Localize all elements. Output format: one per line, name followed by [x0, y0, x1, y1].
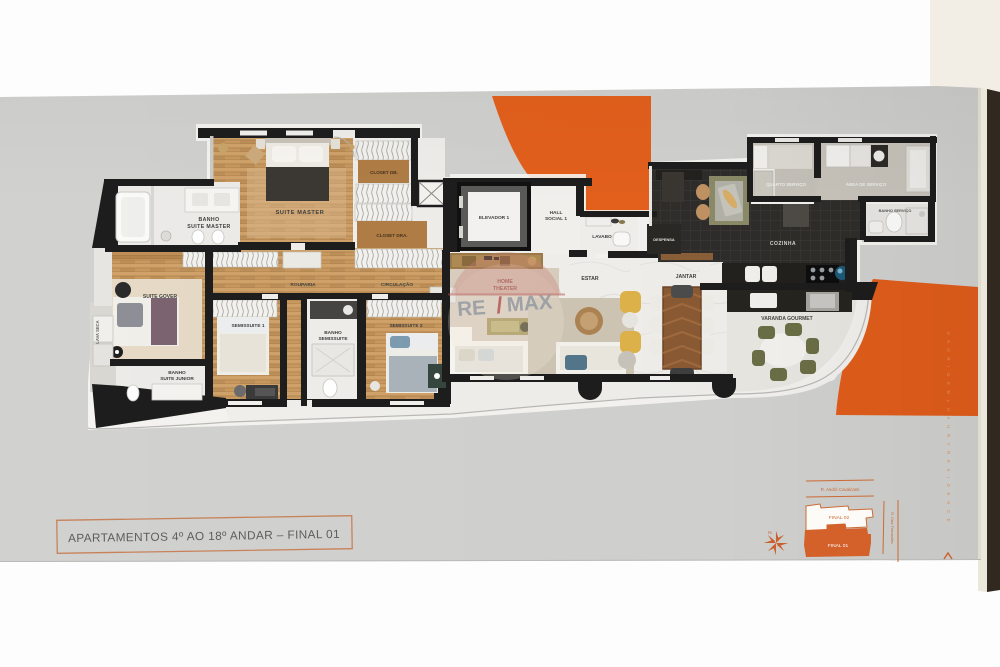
svg-text:0 5 O R I G E M L U X U R: 0 5 O R I G E M L U X U R Y R E S I D E … [946, 332, 951, 524]
svg-text:FINAL 01: FINAL 01 [828, 543, 849, 549]
svg-text:R. André Cavalcanti: R. André Cavalcanti [821, 487, 860, 492]
svg-text:N: N [768, 530, 771, 535]
svg-text:FINAL 02: FINAL 02 [829, 515, 850, 521]
svg-text:R. Dias Fernandes: R. Dias Fernandes [890, 512, 894, 544]
